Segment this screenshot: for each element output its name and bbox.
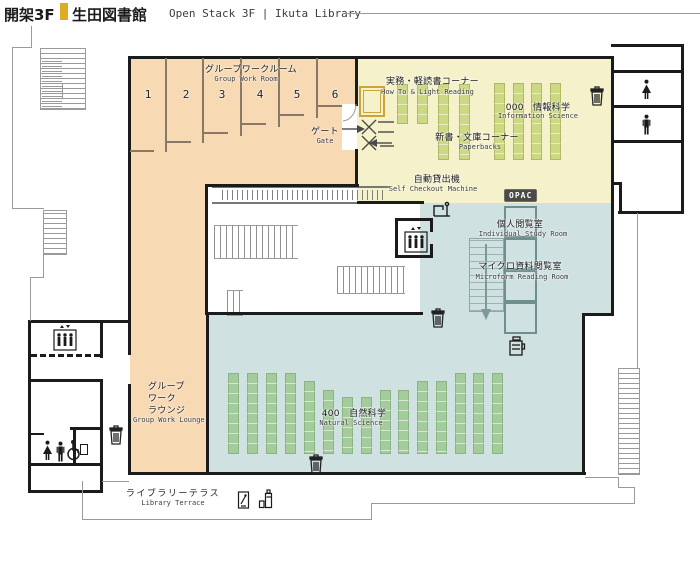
stairs-center-right (337, 266, 405, 294)
wall-segment (206, 315, 209, 473)
opac-badge: OPAC (504, 189, 537, 202)
door-dashed-wall (31, 354, 100, 357)
exterior-stairs-right (618, 368, 640, 475)
wall-segment (128, 56, 131, 355)
label-microform-en: Microform Reading Room (460, 273, 584, 281)
wall-segment (28, 379, 103, 382)
wall-segment (371, 503, 372, 520)
bookshelf (285, 373, 296, 454)
wall-segment (619, 182, 622, 213)
bookshelf (266, 373, 277, 454)
room-number-5: 5 (292, 88, 302, 101)
title-accent-bar (60, 3, 68, 20)
wall-segment (611, 56, 614, 316)
wall-segment (204, 132, 228, 134)
elevator-icon (51, 324, 79, 352)
label-group-work-room-en: Group Work Room (161, 75, 331, 83)
wall-segment (585, 477, 618, 478)
wall-segment (205, 312, 423, 315)
label-natural-science-jp: 400 自然科学 (296, 406, 412, 419)
wall-segment (130, 150, 154, 152)
wall-segment (28, 320, 31, 493)
label-individual-study-en: Individual Study Room (463, 230, 583, 238)
room-number-4: 4 (255, 88, 265, 101)
trash-icon (308, 454, 324, 475)
page-title-library: 生田図書館 (72, 4, 147, 25)
self-checkout-icon (431, 201, 453, 220)
page-subtitle: Open Stack 3F | Ikuta Library (169, 7, 361, 20)
bookshelf (492, 373, 503, 454)
wall-segment (28, 490, 103, 493)
label-how-to-en: How To & Light Reading (370, 88, 485, 96)
label-how-to-jp: 実務・軽読書コーナー (375, 74, 490, 87)
woman-icon (640, 79, 653, 100)
wall-segment (28, 433, 44, 435)
wall-segment (28, 463, 103, 466)
wall-segment (395, 255, 433, 258)
room-number-6: 6 (330, 88, 340, 101)
wall-segment (12, 47, 13, 209)
elevator-icon (402, 226, 430, 254)
wall-segment (102, 481, 129, 482)
phone-icon (237, 491, 250, 510)
wall-segment (355, 56, 358, 106)
wall-segment (82, 519, 372, 520)
wall-segment (30, 277, 44, 278)
bookshelf (473, 373, 484, 454)
wall-segment (634, 487, 635, 504)
label-paperbacks-jp: 新書・文庫コーナー (419, 130, 535, 143)
wall-segment (371, 503, 635, 504)
wall-segment (30, 277, 31, 321)
wall-segment (205, 184, 208, 315)
label-group-work-lounge-en: Group Work Lounge (133, 416, 203, 424)
exterior-stairs-left (43, 210, 67, 255)
trash-icon (108, 425, 124, 446)
wall-segment (82, 481, 83, 520)
bookshelf (247, 373, 258, 454)
wall-segment (318, 105, 342, 107)
accessible-door-icon (80, 444, 88, 455)
wall-segment (611, 105, 681, 108)
bookshelf (228, 373, 239, 454)
wall-segment (242, 123, 266, 125)
wall-segment (681, 44, 684, 214)
wall-segment (12, 47, 32, 48)
wall-segment (280, 114, 304, 116)
floor-map: 開架3F 生田図書館 Open Stack 3F | Ikuta Library (0, 0, 700, 565)
region-group-work-lounge (130, 186, 208, 474)
bookshelf (550, 83, 561, 160)
wall-segment (100, 379, 103, 467)
label-gate-jp: ゲート (303, 124, 347, 137)
bookshelf (436, 381, 447, 454)
label-individual-study-jp: 個人閲覧室 (462, 217, 578, 230)
man-icon (641, 114, 652, 135)
copier-icon (508, 336, 526, 358)
label-info-science-en: Information Science (480, 112, 596, 120)
label-self-checkout-en: Self Checkout Machine (373, 185, 493, 193)
wall-segment (128, 472, 586, 475)
wall-segment (205, 184, 359, 187)
page-title-floor: 開架3F (4, 4, 55, 25)
label-microform-jp: マイクロ資料閲覧室 (462, 259, 578, 272)
wall-segment (611, 70, 681, 73)
wall-segment (430, 244, 433, 258)
down-arrow-icon (478, 240, 494, 322)
trash-icon (430, 308, 446, 329)
wall-segment (12, 208, 44, 209)
study-cell (504, 302, 537, 334)
wall-segment (128, 384, 131, 475)
label-library-terrace-jp: ライブラリーテラス (115, 486, 231, 499)
wall-segment (100, 320, 103, 358)
label-group-work-lounge-jp: グループ ワーク ラウンジ (148, 381, 185, 417)
wall-segment (357, 201, 424, 204)
stairs-center-left (214, 225, 298, 259)
wall-segment (128, 56, 614, 59)
wall-segment (430, 218, 433, 232)
wall-segment (43, 253, 44, 278)
wall-segment (611, 140, 681, 143)
label-paperbacks-en: Paperbacks (422, 143, 538, 151)
wall-segment (611, 44, 684, 47)
gate-exit-arrow (369, 139, 377, 147)
wall-segment (618, 477, 619, 488)
wall-segment (637, 213, 638, 369)
exterior-stairs-topleft (40, 48, 86, 110)
label-natural-science-en: Natural Science (293, 419, 409, 427)
room-number-2: 2 (181, 88, 191, 101)
wall-segment (618, 211, 684, 214)
bookshelf (455, 373, 466, 454)
wall-segment (582, 313, 585, 475)
wall-segment (28, 320, 130, 323)
woman-icon (41, 440, 54, 461)
bookshelf (417, 381, 428, 454)
wall-segment (395, 218, 433, 221)
wall-segment (355, 149, 358, 187)
wall-segment (395, 218, 398, 258)
wall-segment (582, 313, 614, 316)
room-number-3: 3 (217, 88, 227, 101)
wall-segment (618, 487, 635, 488)
label-self-checkout-jp: 自動貸出機 (379, 172, 495, 185)
room-number-1: 1 (143, 88, 153, 101)
wall-segment (31, 26, 32, 48)
label-group-work-room-jp: グループワークルーム (161, 62, 341, 75)
label-library-terrace-en: Library Terrace (115, 499, 231, 507)
wall-segment (100, 463, 103, 492)
header-rule (345, 13, 700, 14)
wall-segment (167, 141, 191, 143)
label-gate-en: Gate (303, 137, 347, 145)
vending-icon (258, 489, 274, 510)
